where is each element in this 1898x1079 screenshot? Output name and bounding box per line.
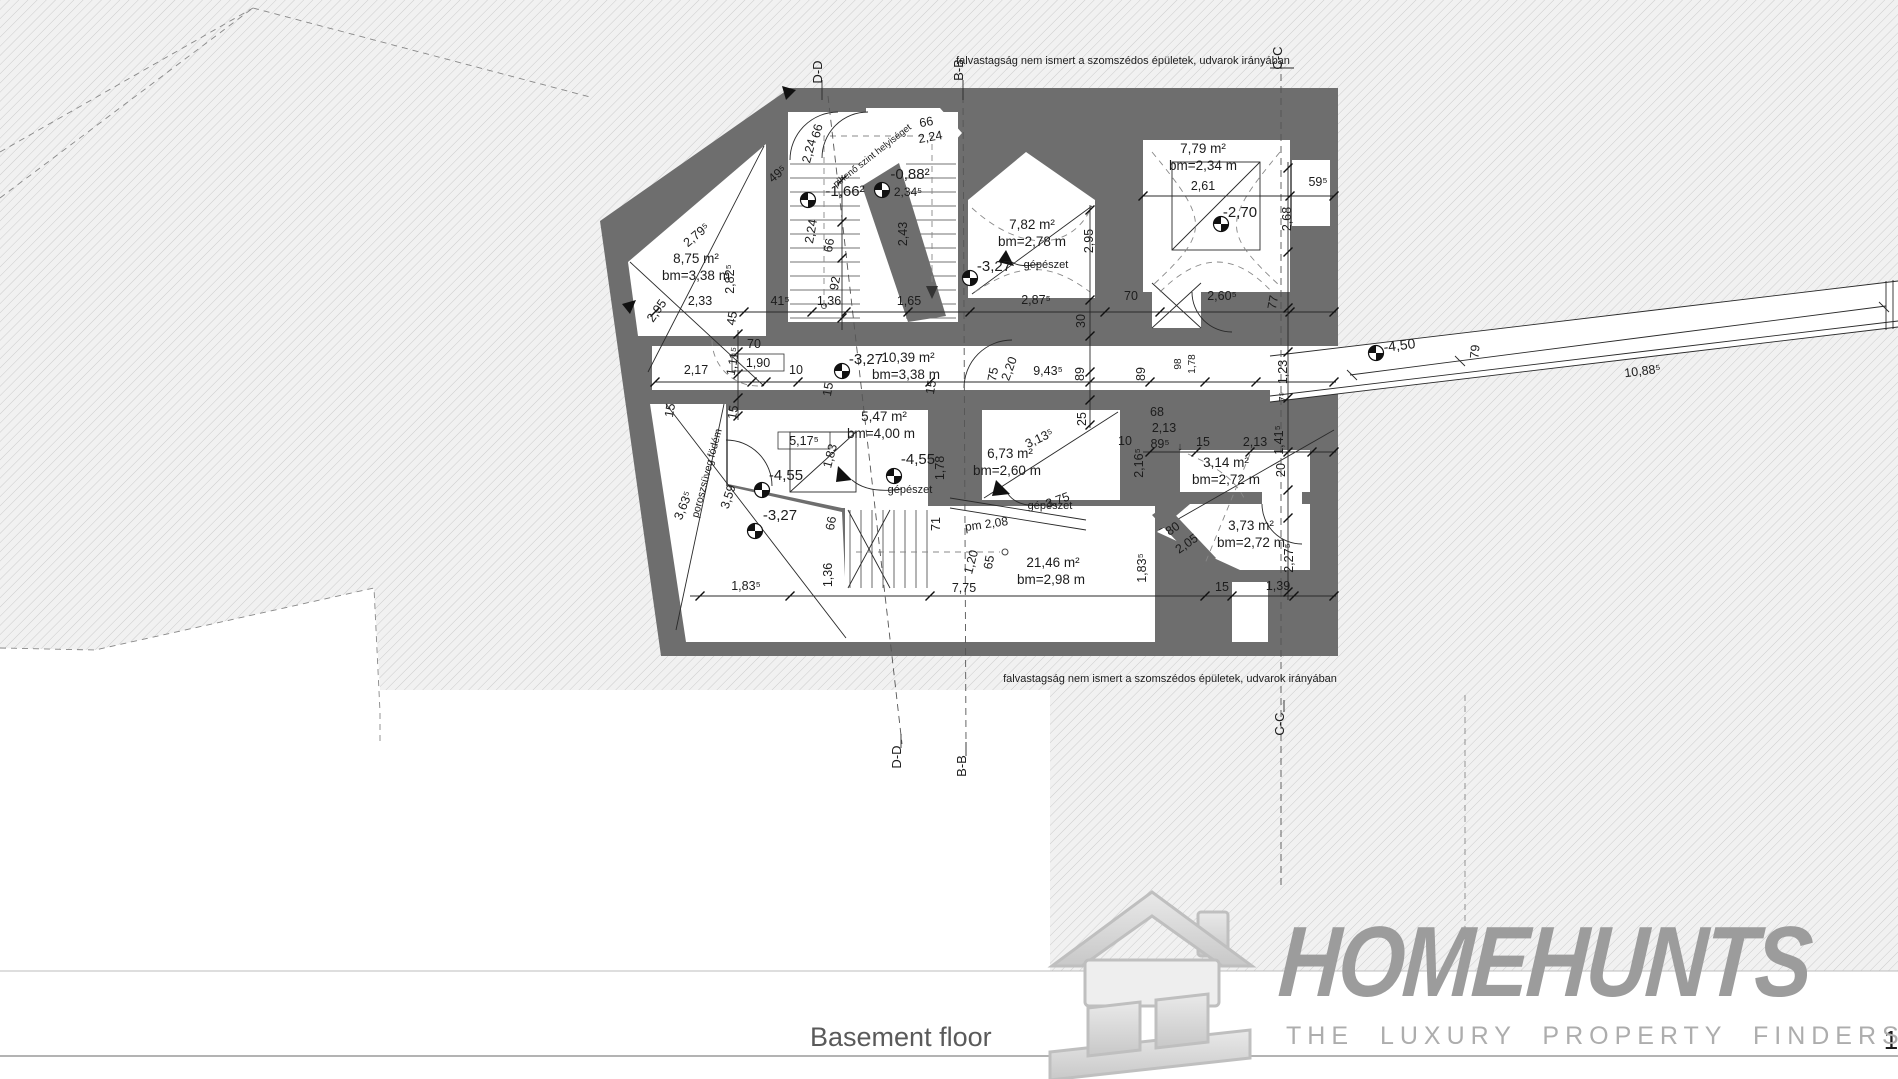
door-opening bbox=[1262, 492, 1302, 504]
annotation-label: gépészet bbox=[888, 484, 933, 496]
dim-label: 10 bbox=[789, 363, 803, 377]
elevation-label: -2,70 bbox=[1223, 204, 1257, 221]
dim-label: 2,17 bbox=[684, 363, 708, 377]
room-height-label: bm=2,34 m bbox=[1169, 158, 1237, 173]
dim-label: 66 bbox=[823, 515, 839, 531]
dim-label: 71 bbox=[929, 517, 943, 531]
dim-label: 2,43 bbox=[896, 222, 910, 246]
room-area-label: 3,14 m² bbox=[1203, 455, 1249, 470]
dim-label: 15 bbox=[1215, 580, 1229, 594]
dim-label: 2,13 bbox=[1152, 421, 1176, 435]
dim-label: 7⁵ bbox=[1278, 392, 1289, 402]
elevation-marker bbox=[1214, 217, 1229, 232]
dim-label: 77 bbox=[1265, 294, 1281, 310]
dim-label: 2,27⁵ bbox=[1282, 543, 1296, 573]
elevation-label: -1,66² bbox=[825, 183, 864, 200]
section-label: C-C bbox=[1272, 712, 1287, 735]
dim-label: 25 bbox=[1075, 412, 1089, 426]
room-area-label: 5,47 m² bbox=[861, 409, 907, 424]
annotation-label: gépészet bbox=[1024, 259, 1069, 271]
room-height-label: bm=2,72 m bbox=[1192, 472, 1260, 487]
dim-label: 1,90 bbox=[746, 356, 770, 370]
elevation-marker bbox=[875, 183, 890, 198]
dim-label: 15 bbox=[820, 381, 836, 397]
section-label: D-D bbox=[810, 60, 825, 83]
dim-label: 2,61 bbox=[1191, 179, 1215, 193]
dim-label: 92 bbox=[827, 275, 843, 291]
room-area-label: 7,79 m² bbox=[1180, 141, 1226, 156]
dim-label: 65 bbox=[981, 554, 997, 570]
elevation-marker bbox=[748, 524, 763, 539]
dim-label: 89⁵ bbox=[1150, 437, 1169, 451]
room-height-label: bm=2,98 m bbox=[1017, 572, 1085, 587]
dim-label: 79 bbox=[1467, 344, 1482, 359]
dim-label: 1,78 bbox=[1187, 354, 1198, 374]
dim-label: 70 bbox=[747, 337, 761, 351]
elevation-marker bbox=[835, 364, 850, 379]
homehunts-tagline: THE LUXURY PROPERTY FINDERS bbox=[1286, 1022, 1898, 1051]
elevation-label: -4,55 bbox=[901, 451, 935, 468]
room-area-label: 10,39 m² bbox=[881, 350, 935, 365]
dim-label: 15 bbox=[662, 402, 678, 418]
elevation-label: -0,88² bbox=[890, 166, 929, 183]
dim-label: 7,75 bbox=[952, 581, 976, 595]
dim-label: 45 bbox=[724, 310, 740, 326]
floor-plan-page: falvastagság nem ismert a szomszédos épü… bbox=[0, 0, 1898, 1079]
dim-label: 98 bbox=[1173, 358, 1184, 370]
dim-label: 2,13 bbox=[1243, 435, 1267, 449]
elevation-marker bbox=[963, 271, 978, 286]
dim-label: 89 bbox=[1134, 367, 1148, 381]
elevation-label: -3,27 bbox=[763, 507, 797, 524]
dim-label: 1,65 bbox=[897, 294, 921, 308]
elevation-label: -3,27 bbox=[977, 258, 1011, 275]
dim-label: 1,78 bbox=[933, 456, 947, 480]
dim-label: 66 bbox=[918, 114, 934, 130]
boundary-note: falvastagság nem ismert a szomszédos épü… bbox=[956, 55, 1290, 67]
dim-label: 1,41⁵ bbox=[1272, 425, 1286, 455]
dim-label: 15 bbox=[1196, 435, 1210, 449]
dim-label: 89 bbox=[1073, 367, 1087, 381]
room-area-label: 21,46 m² bbox=[1026, 555, 1080, 570]
dim-label: 5,17⁵ bbox=[789, 434, 819, 448]
nook-59 bbox=[1292, 160, 1330, 226]
room-area-label: 3,73 m² bbox=[1228, 518, 1274, 533]
elevation-marker bbox=[887, 469, 902, 484]
room-height-label: bm=2,60 m bbox=[973, 463, 1041, 478]
boundary-note: falvastagság nem ismert a szomszédos épü… bbox=[1003, 673, 1337, 685]
room-height-label: bm=3,38 m bbox=[662, 268, 730, 283]
section-label: B-B bbox=[951, 59, 966, 81]
floor-title: Basement floor bbox=[810, 1022, 992, 1053]
dim-label: 41⁵ bbox=[770, 294, 789, 308]
dim-label: 2,60⁵ bbox=[1207, 289, 1237, 303]
dim-label: 70 bbox=[1124, 289, 1138, 303]
section-label: D-D bbox=[889, 745, 904, 768]
dim-label: 2,34⁵ bbox=[894, 185, 922, 199]
stub-room bbox=[1232, 582, 1268, 642]
dim-label: 2,95 bbox=[1082, 229, 1096, 253]
dim-label: 2,68 bbox=[1280, 207, 1294, 231]
dim-label: 1,83⁵ bbox=[1135, 553, 1149, 583]
room-height-label: bm=2,72 m bbox=[1217, 535, 1285, 550]
dim-label: 1,83⁵ bbox=[731, 579, 761, 593]
section-label: C-C bbox=[1270, 46, 1285, 69]
elevation-marker bbox=[1369, 346, 1384, 361]
section-label: B-B bbox=[954, 755, 969, 777]
dim-label: 2,16⁵ bbox=[1132, 448, 1146, 478]
dim-label: 10 bbox=[1118, 434, 1132, 448]
dim-label: 30 bbox=[1074, 314, 1088, 328]
room-height-label: bm=3,38 m bbox=[872, 367, 940, 382]
dim-label: 2,33 bbox=[688, 294, 712, 308]
dim-label: 2,82⁵ bbox=[723, 264, 737, 294]
dim-label: ↓ bbox=[1177, 441, 1183, 453]
dim-label: 15 bbox=[923, 379, 939, 395]
dim-label: 1,23 bbox=[1276, 360, 1290, 384]
dim-label: 20 bbox=[1274, 463, 1288, 477]
room-area-label: 7,82 m² bbox=[1009, 217, 1055, 232]
dim-label: 15 bbox=[725, 404, 741, 420]
room-area-label: 6,73 m² bbox=[987, 446, 1033, 461]
elevation-label: -3,27 bbox=[849, 351, 883, 368]
elevation-marker bbox=[755, 483, 770, 498]
dim-label: 2,87⁵ bbox=[1021, 293, 1051, 307]
room-height-label: bm=2,78 m bbox=[998, 234, 1066, 249]
homehunts-logo-text: HOMEHUNTS bbox=[1276, 912, 1813, 1012]
elevation-label: -4,55 bbox=[769, 467, 803, 484]
dim-label: 68 bbox=[1150, 405, 1164, 419]
dim-label: 9,43⁵ bbox=[1033, 364, 1063, 378]
dim-label: 1,36 bbox=[817, 294, 841, 308]
room-area-label: 8,75 m² bbox=[673, 251, 719, 266]
room-height-label: bm=4,00 m bbox=[847, 426, 915, 441]
dim-label: 1,39 bbox=[1266, 579, 1290, 593]
dim-label: 66 bbox=[821, 237, 837, 253]
dim-label: 1,36 bbox=[821, 563, 835, 587]
elevation-marker bbox=[801, 193, 816, 208]
dim-label: 59⁵ bbox=[1308, 175, 1327, 189]
